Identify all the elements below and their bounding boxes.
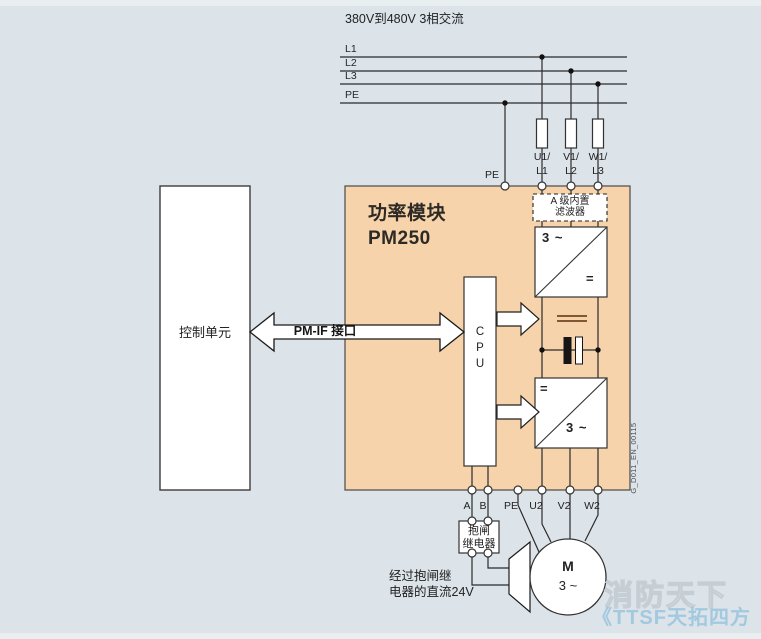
rectifier-label-ac: 3 ~ bbox=[542, 231, 563, 245]
cpu-letter-p: P bbox=[470, 342, 490, 355]
brake-symbol bbox=[509, 542, 530, 612]
terminal-v1 bbox=[567, 182, 575, 190]
supply-title: 380V到480V 3相交流 bbox=[345, 13, 464, 27]
wiring-diagram: 380V到480V 3相交流 L1 L2 L3 PE PE U1/ L1 V1/… bbox=[0, 0, 761, 639]
module-title-line1: 功率模块 bbox=[368, 204, 446, 225]
cpu-letter-u: U bbox=[470, 358, 490, 371]
fuse-l1 bbox=[537, 119, 548, 148]
relay-output-wire-left bbox=[472, 557, 509, 585]
brake-note-line1: 经过抱闸继 bbox=[389, 570, 452, 584]
bottom-terminal-label-u2: U2 bbox=[524, 501, 548, 513]
inverter-label-ac: 3 ~ bbox=[566, 421, 587, 435]
control-unit-label: 控制单元 bbox=[160, 326, 250, 340]
relay-terminal-bottom-right bbox=[484, 549, 492, 557]
top-terminal-label-u1b: L1 bbox=[528, 166, 556, 178]
bottom-terminal-label-pe: PE bbox=[499, 501, 523, 513]
brake-relay-label-line2: 继电器 bbox=[455, 538, 503, 550]
bottom-terminal-label-w2: W2 bbox=[580, 501, 604, 513]
top-terminal-label-v1a: V1/ bbox=[557, 152, 585, 164]
fuses bbox=[537, 119, 604, 148]
terminal-b bbox=[484, 486, 492, 494]
watermark-line2: 《TTSF天拓四方 bbox=[592, 607, 751, 629]
bottom-terminal-label-v2: V2 bbox=[552, 501, 576, 513]
bottom-terminal-label-b: B bbox=[471, 501, 495, 513]
terminal-w2 bbox=[594, 486, 602, 494]
motor-label-m: M bbox=[548, 559, 588, 574]
capacitor-plate-filled bbox=[564, 337, 572, 364]
relay-terminal-bottom-left bbox=[468, 549, 476, 557]
relay-terminal-top-right bbox=[484, 517, 492, 525]
rectifier-label-dc: = bbox=[586, 272, 595, 286]
relay-terminal-top-left bbox=[468, 517, 476, 525]
relay-output-wire-right bbox=[488, 557, 509, 568]
supply-label-l2: L2 bbox=[345, 58, 357, 70]
terminal-pe-bottom bbox=[514, 486, 522, 494]
top-terminal-label-u1a: U1/ bbox=[528, 152, 556, 164]
doc-code: G_D011_EN_00115 bbox=[630, 421, 638, 495]
terminal-a bbox=[468, 486, 476, 494]
cpu-letter-c: C bbox=[470, 326, 490, 339]
brake-relay-label-line1: 抱闸 bbox=[455, 525, 503, 537]
brake-note-line2: 电器的直流24V bbox=[389, 586, 474, 600]
supply-label-pe: PE bbox=[345, 90, 359, 102]
fuse-l3 bbox=[593, 119, 604, 148]
module-title-line2: PM250 bbox=[368, 229, 431, 250]
terminal-u1 bbox=[538, 182, 546, 190]
terminal-v2 bbox=[566, 486, 574, 494]
top-terminal-label-pe: PE bbox=[480, 170, 504, 182]
supply-label-l1: L1 bbox=[345, 44, 357, 56]
filter-label-line1: A 级内置 bbox=[533, 196, 607, 207]
supply-label-l3: L3 bbox=[345, 71, 357, 83]
terminal-pe-top bbox=[501, 182, 509, 190]
motor-circle bbox=[530, 539, 606, 615]
cpu-box bbox=[464, 277, 496, 466]
motor-label-3ph: 3 ~ bbox=[548, 579, 588, 593]
capacitor-plate-outline bbox=[576, 337, 583, 364]
fuse-l2 bbox=[566, 119, 577, 148]
diagram-geometry bbox=[0, 0, 761, 639]
terminal-w1 bbox=[594, 182, 602, 190]
terminal-u2 bbox=[538, 486, 546, 494]
top-terminal-label-w1a: W1/ bbox=[584, 152, 612, 164]
top-terminal-label-v1b: L2 bbox=[557, 166, 585, 178]
filter-label-line2: 滤波器 bbox=[533, 207, 607, 218]
inverter-label-dc: = bbox=[540, 382, 549, 396]
pm-if-label: PM-IF 接口 bbox=[280, 325, 370, 339]
top-terminal-label-w1b: L3 bbox=[584, 166, 612, 178]
